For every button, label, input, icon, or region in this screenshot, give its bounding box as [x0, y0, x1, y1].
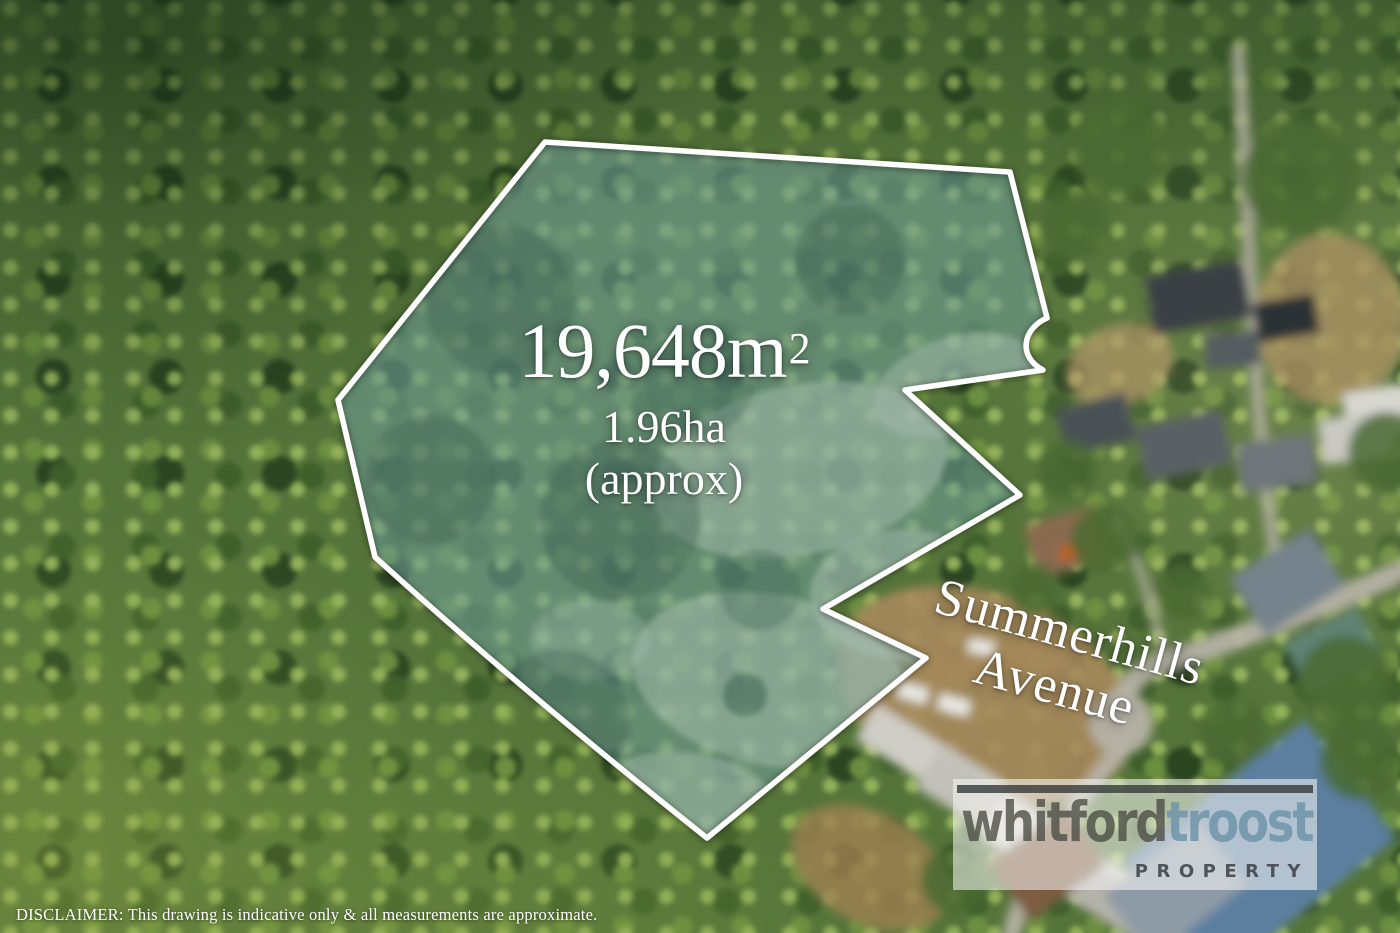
parcel-area-hectares: 1.96ha [518, 404, 809, 450]
disclaimer-text: DISCLAIMER: This drawing is indicative o… [16, 905, 597, 925]
logo-brand-part1: whitford [961, 790, 1166, 854]
parcel-area-label: 19,648m2 1.96ha (approx) [518, 312, 809, 502]
logo-brand-part2: troost [1166, 790, 1312, 854]
parcel-area-sqm: 19,648m2 [518, 312, 809, 390]
agency-logo-panel: whitfordtroost PROPERTY [953, 779, 1317, 890]
parcel-area-exponent: 2 [789, 324, 810, 373]
logo-brand-name: whitfordtroost [961, 795, 1239, 850]
parcel-area-qualifier: (approx) [518, 456, 809, 502]
aerial-photo: 19,648m2 1.96ha (approx) Summerhills Ave… [0, 0, 1400, 933]
logo-tagline: PROPERTY [1135, 861, 1309, 882]
